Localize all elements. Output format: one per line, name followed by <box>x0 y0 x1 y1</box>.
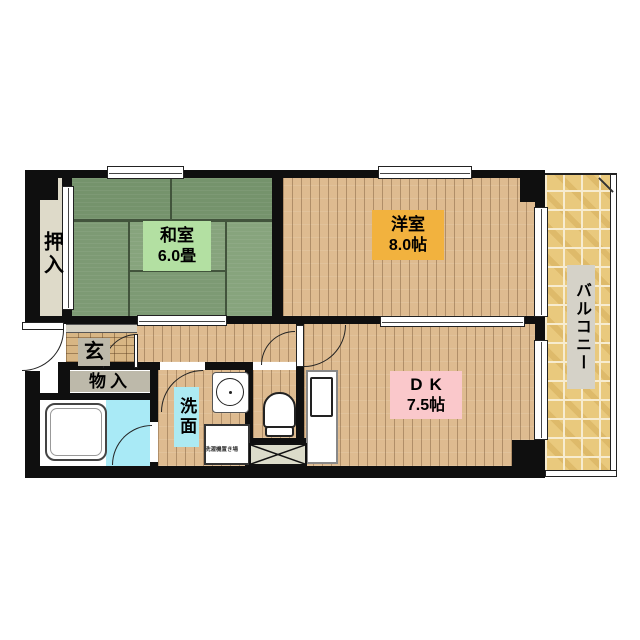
senmen-basin-drain <box>229 391 232 394</box>
dk-door-leaf <box>296 325 304 367</box>
youshitsu-name: 洋室 <box>391 214 425 235</box>
toilet-base <box>265 426 294 437</box>
wall-monoire-left <box>58 362 70 395</box>
door-gap-senmen <box>160 362 205 370</box>
kitchen-sink <box>310 377 333 417</box>
label-genkan: 玄 <box>78 338 110 366</box>
room-label-washitsu: 和室 6.0畳 <box>143 221 211 271</box>
tatami-mat <box>72 178 172 222</box>
window-youshitsu-top <box>378 166 472 179</box>
balcony-railing-right <box>610 174 617 477</box>
sliding-door-youshitsu-dk <box>380 316 525 327</box>
sliding-door-washitsu-south <box>137 315 227 326</box>
pipe-space-box <box>249 443 307 466</box>
balcony-top-edge <box>545 173 617 175</box>
balcony-railing-bottom <box>545 470 617 477</box>
dk-size: 7.5帖 <box>407 396 445 416</box>
front-door-leaf <box>22 322 64 330</box>
genkan-step-edge <box>66 324 137 333</box>
wall-washitsu-youshitsu <box>272 178 283 316</box>
label-oshiire: 押入 <box>38 196 64 312</box>
label-balcony: バルコニー <box>567 265 595 389</box>
room-label-dk: DK 7.5帖 <box>390 371 462 419</box>
bathtub-inner <box>50 408 102 456</box>
toilet-bowl <box>263 392 296 428</box>
dk-name: DK <box>410 374 449 395</box>
label-senmen: 洗面 <box>174 387 199 447</box>
window-youshitsu-balcony <box>534 207 548 317</box>
label-monoire: 物入 <box>70 371 150 392</box>
wall-left-lower <box>25 371 40 478</box>
tatami-mat <box>227 222 272 316</box>
washitsu-size: 6.0畳 <box>158 247 196 267</box>
hall-door-leaf <box>134 334 138 368</box>
tatami-mat <box>72 222 130 316</box>
washitsu-name: 和室 <box>160 225 194 246</box>
tatami-mat <box>130 272 227 316</box>
label-laundry: 洗濯機置き場 <box>205 445 249 455</box>
bathtub <box>45 403 107 461</box>
room-label-youshitsu: 洋室 8.0帖 <box>372 210 444 260</box>
pipe-space-x-icon <box>251 445 305 464</box>
youshitsu-size: 8.0帖 <box>389 236 427 256</box>
wall-bathroom-top <box>40 393 158 400</box>
floor-plan: 和室 6.0畳 洋室 8.0帖 DK 7.5帖 押入 玄 物入 洗面 バルコニー… <box>0 0 640 640</box>
window-washitsu-top <box>107 166 184 179</box>
window-dk-balcony <box>534 340 548 440</box>
tatami-mat <box>172 178 272 222</box>
wall-bottom <box>25 466 545 478</box>
